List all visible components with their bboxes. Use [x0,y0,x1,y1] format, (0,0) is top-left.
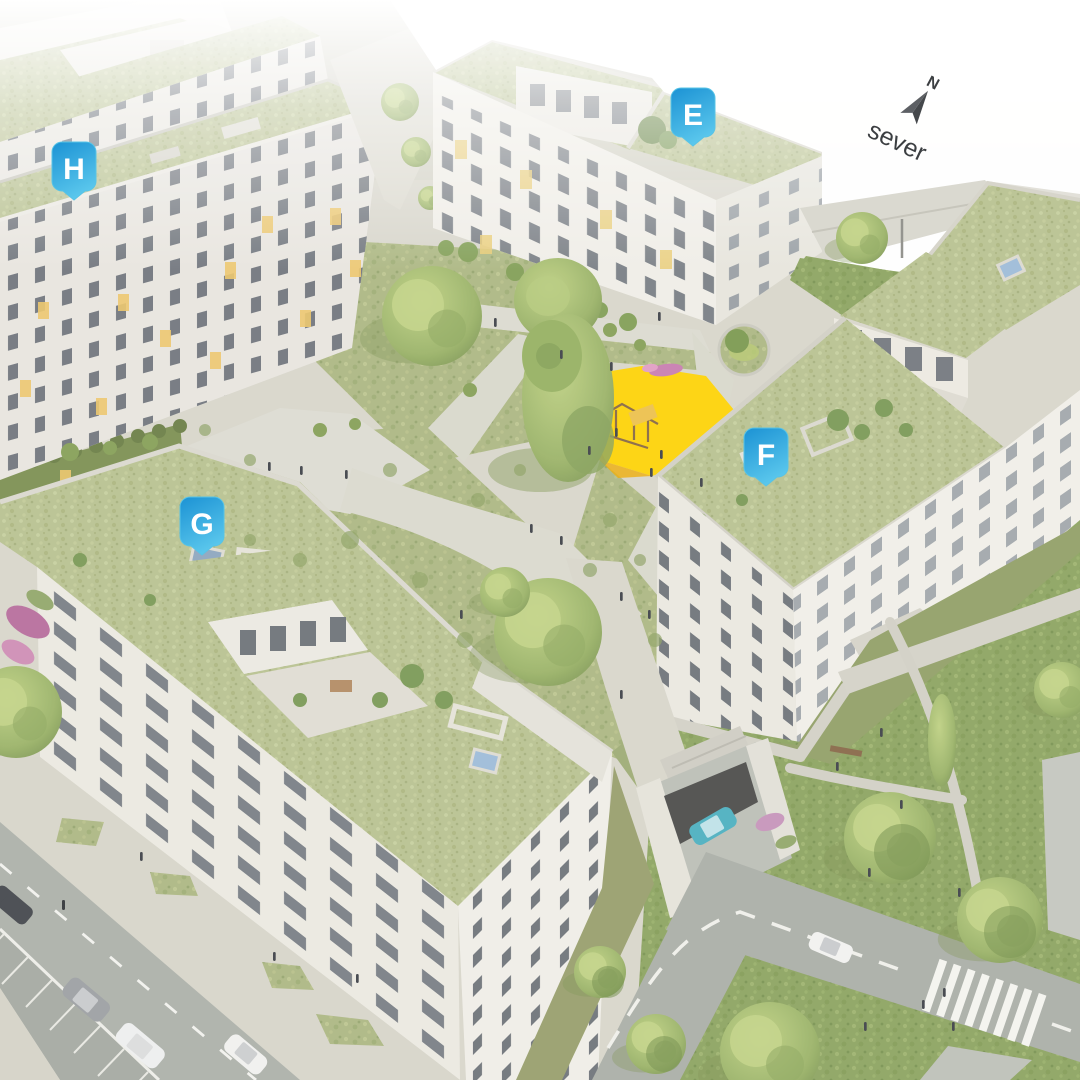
svg-text:H: H [63,153,85,186]
svg-text:F: F [757,439,775,472]
svg-text:G: G [190,508,213,541]
svg-text:E: E [683,99,703,132]
